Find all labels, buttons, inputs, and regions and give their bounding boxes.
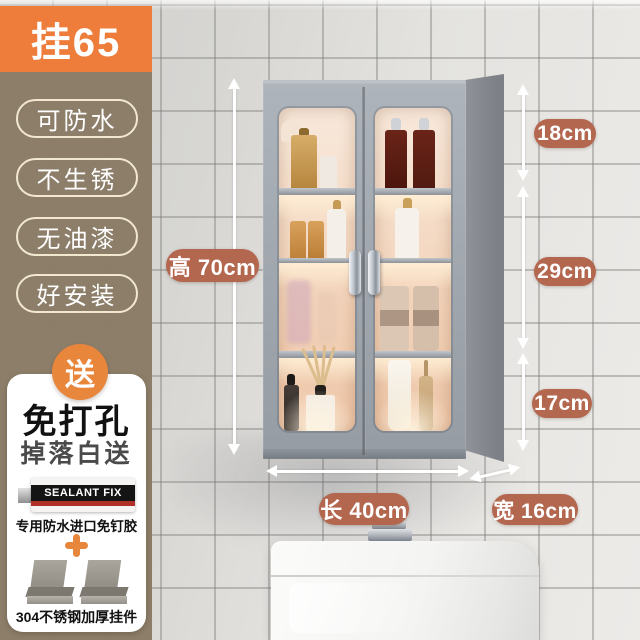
faucet-base: [368, 529, 412, 541]
model-badge-label: 挂65: [31, 10, 122, 68]
feature-pill-waterproof: 可防水: [16, 99, 138, 138]
feature-pill-rustproof: 不生锈: [16, 158, 138, 197]
cabinet-side-panel: [465, 72, 504, 462]
depth-dimension-label: 宽 16cm: [492, 494, 578, 525]
product-bottle: [395, 208, 419, 261]
cabinet-bottom-rail: [263, 449, 466, 459]
arrowhead-up-icon: [517, 84, 529, 95]
gift-card: 免打孔 掉落白送 SEALANT FIX 专用防水进口免钉胶 304不锈钢加厚挂…: [7, 374, 146, 632]
arrowhead-down-icon: [517, 338, 529, 349]
plus-icon: [65, 534, 88, 557]
arrowhead-left-icon: [266, 465, 277, 477]
gift-subtitle: 掉落白送: [7, 434, 146, 470]
product-bottle: [385, 130, 407, 191]
sealant-tube-cap: [18, 488, 32, 503]
wall-cabinet: [263, 72, 504, 462]
arrowhead-down-icon: [228, 444, 240, 455]
arrowhead-up-icon: [517, 353, 529, 364]
sink-shine: [289, 583, 409, 633]
sealant-red-stripe: [31, 501, 135, 506]
product-image: 高 70cm 18cm 29cm 17cm 长 40cm 宽 16cm 挂65 …: [0, 0, 640, 640]
product-bottle: [327, 209, 346, 261]
model-badge: 挂65: [0, 6, 152, 72]
cabinet-shelf: [375, 188, 451, 195]
product-bottle: [380, 286, 409, 351]
feature-pill-paintfree: 无油漆: [16, 217, 138, 256]
cabinet-shelf: [375, 351, 451, 358]
shelf-light: [375, 358, 451, 384]
cabinet-light: [279, 391, 355, 431]
feature-pill-easyinstall: 好安装: [16, 274, 138, 313]
sink: [271, 541, 539, 640]
section-bottom-label: 17cm: [532, 389, 592, 418]
product-bottle: [413, 286, 439, 351]
product-bottle: [290, 221, 306, 261]
door-seam: [362, 87, 366, 455]
section-top-arrow: [522, 93, 525, 172]
sealant-tube-body: SEALANT FIX: [31, 478, 135, 512]
door-handle-right: [368, 250, 380, 295]
section-top-label: 18cm: [534, 119, 596, 148]
steel-bracket: [81, 560, 127, 604]
product-bottle: [287, 280, 311, 344]
sealant-tube: SEALANT FIX: [18, 478, 136, 512]
arrowhead-up-icon: [517, 186, 529, 197]
cabinet-door-left-glass: [279, 108, 355, 431]
height-dimension-label: 高 70cm: [166, 249, 259, 282]
cabinet-shelf: [279, 188, 355, 195]
product-bottle: [320, 156, 337, 192]
section-middle-label: 29cm: [534, 257, 596, 286]
arrowhead-down-icon: [517, 440, 529, 451]
gift-badge: 送: [52, 344, 108, 400]
product-bottle: [317, 292, 337, 344]
sealant-brand-label: SEALANT FIX: [31, 485, 135, 501]
glue-caption: 专用防水进口免钉胶: [7, 515, 146, 535]
arrowhead-down-icon: [517, 170, 529, 181]
sink-seam: [271, 575, 539, 577]
product-bottle: [308, 221, 324, 261]
cabinet-door-right-glass: [375, 108, 451, 431]
door-handle-left: [349, 250, 361, 295]
cabinet-front: [263, 80, 466, 459]
arrowhead-up-icon: [228, 78, 240, 89]
bracket-caption: 304不锈钢加厚挂件: [7, 607, 146, 627]
cabinet-light: [375, 391, 451, 431]
product-bottle: [413, 130, 435, 191]
steel-bracket: [27, 560, 73, 604]
cabinet-shelf: [279, 351, 355, 358]
gift-badge-label: 送: [65, 350, 95, 394]
product-bottle: [291, 135, 317, 191]
section-middle-arrow: [522, 195, 525, 339]
length-arrow: [276, 470, 460, 473]
section-bottom-arrow: [522, 362, 525, 441]
length-dimension-label: 长 40cm: [319, 493, 409, 525]
